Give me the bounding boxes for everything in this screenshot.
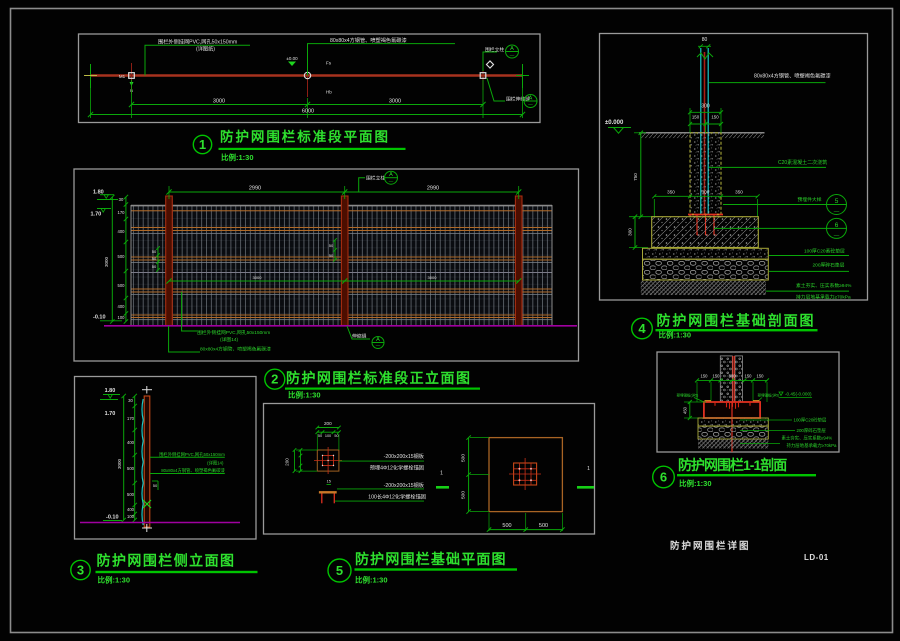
- svg-text:3000: 3000: [428, 275, 438, 280]
- svg-text:预埋钢板(详5): 预埋钢板(详5): [677, 393, 699, 398]
- svg-text:预埋钢板(详5): 预埋钢板(详5): [758, 393, 780, 398]
- svg-text:A: A: [510, 46, 514, 52]
- svg-text:比例:1:30: 比例:1:30: [355, 575, 388, 585]
- svg-text:30: 30: [119, 197, 124, 202]
- svg-text:—: —: [376, 343, 381, 348]
- svg-text:(详图14): (详图14): [207, 459, 224, 466]
- svg-text:15: 15: [327, 480, 331, 484]
- svg-text:500: 500: [461, 491, 467, 499]
- svg-text:150: 150: [711, 114, 719, 119]
- svg-text:3000: 3000: [213, 99, 225, 105]
- svg-text:±0.00: ±0.00: [286, 56, 298, 61]
- svg-text:素土夯实、压实系数≥94%: 素土夯实、压实系数≥94%: [782, 435, 833, 442]
- svg-text:±0.000: ±0.000: [605, 120, 624, 126]
- svg-text:150: 150: [692, 114, 700, 119]
- svg-text:C20素混凝土二次浇筑: C20素混凝土二次浇筑: [778, 159, 827, 166]
- svg-text:80x80x4方钢管、喷塑褐色氟碳漆: 80x80x4方钢管、喷塑褐色氟碳漆: [161, 467, 225, 474]
- svg-text:防护网围栏详图: 防护网围栏详图: [670, 540, 751, 552]
- svg-text:100厚C20素砼垫层: 100厚C20素砼垫层: [804, 247, 845, 254]
- svg-text:300: 300: [701, 104, 710, 110]
- svg-text:2: 2: [271, 372, 278, 387]
- svg-text:LD-01: LD-01: [804, 553, 829, 562]
- svg-text:400: 400: [127, 507, 135, 512]
- svg-text:防护网围栏基础剖面图: 防护网围栏基础剖面图: [657, 313, 816, 329]
- svg-text:400: 400: [118, 229, 126, 234]
- svg-text:围栏外侧挂网PVC,网孔50x150mm: 围栏外侧挂网PVC,网孔50x150mm: [197, 329, 270, 336]
- svg-text:Hb: Hb: [326, 90, 332, 95]
- svg-text:50: 50: [152, 249, 157, 254]
- svg-text:持力层地基承载力≥70kPa: 持力层地基承载力≥70kPa: [796, 293, 851, 300]
- svg-text:80x80x4方钢管、喷塑褐色氟碳漆: 80x80x4方钢管、喷塑褐色氟碳漆: [200, 346, 271, 353]
- svg-text:1.80: 1.80: [105, 388, 116, 394]
- svg-text:预埋4Φ12化学螺栓锚固: 预埋4Φ12化学螺栓锚固: [370, 464, 424, 472]
- svg-text:1.70: 1.70: [105, 411, 116, 417]
- svg-text:50: 50: [318, 434, 322, 438]
- svg-text:6: 6: [835, 222, 839, 229]
- svg-text:3: 3: [77, 563, 84, 578]
- svg-text:500: 500: [127, 466, 135, 471]
- svg-text:500: 500: [461, 454, 467, 462]
- svg-text:防护网围栏标准段正立面图: 防护网围栏标准段正立面图: [286, 370, 471, 386]
- svg-text:1: 1: [440, 471, 443, 477]
- svg-text:-0.10: -0.10: [106, 515, 119, 521]
- svg-text:1: 1: [199, 137, 206, 152]
- svg-text:4: 4: [638, 321, 646, 336]
- svg-text:100厚C20砼垫层: 100厚C20砼垫层: [794, 417, 828, 424]
- svg-text:(详图14): (详图14): [220, 336, 239, 343]
- svg-text:6: 6: [660, 470, 667, 485]
- svg-text:防护网围栏标准段平面图: 防护网围栏标准段平面图: [220, 129, 390, 145]
- svg-text:100: 100: [127, 514, 135, 519]
- svg-text:400: 400: [118, 304, 126, 309]
- svg-text:80: 80: [702, 37, 708, 43]
- svg-text:持力层地基承载力≥70kPa: 持力层地基承载力≥70kPa: [787, 442, 838, 449]
- svg-text:-200x200x15钢板: -200x200x15钢板: [384, 481, 425, 489]
- svg-text:500: 500: [502, 523, 511, 529]
- svg-text:—: —: [510, 53, 515, 58]
- svg-text:750: 750: [633, 173, 638, 181]
- svg-text:50: 50: [152, 264, 157, 269]
- svg-text:伸缩缝: 伸缩缝: [352, 333, 367, 340]
- svg-text:-0.10: -0.10: [93, 315, 106, 321]
- svg-text:150: 150: [713, 374, 721, 379]
- svg-text:M1: M1: [119, 74, 126, 79]
- svg-text:A: A: [389, 172, 393, 178]
- svg-text:350: 350: [667, 190, 675, 195]
- svg-text:200厚碎石垫层: 200厚碎石垫层: [797, 427, 827, 434]
- svg-text:围栏立柱: 围栏立柱: [366, 175, 385, 182]
- svg-text:—: —: [834, 233, 840, 239]
- svg-text:100长4Φ12化学螺栓锚固: 100长4Φ12化学螺栓锚固: [368, 493, 426, 501]
- svg-text:围栏立柱: 围栏立柱: [485, 46, 504, 53]
- svg-text:2990: 2990: [249, 186, 261, 192]
- svg-text:2990: 2990: [427, 186, 439, 192]
- svg-text:200: 200: [285, 458, 290, 466]
- svg-text:50: 50: [153, 483, 158, 488]
- svg-text:—: —: [389, 179, 394, 184]
- svg-text:6000: 6000: [302, 109, 314, 115]
- svg-text:围栏外侧挂网PVC,网孔50x150mm: 围栏外侧挂网PVC,网孔50x150mm: [159, 451, 225, 458]
- svg-text:3000: 3000: [389, 99, 401, 105]
- svg-text:400: 400: [127, 440, 135, 445]
- svg-text:比例:1:30: 比例:1:30: [288, 390, 321, 400]
- svg-text:500: 500: [118, 283, 126, 288]
- svg-text:5: 5: [336, 563, 343, 578]
- svg-text:防护网围栏侧立面图: 防护网围栏侧立面图: [97, 553, 236, 569]
- svg-text:80x80x4方钢管、喷塑褐色氟碳漆: 80x80x4方钢管、喷塑褐色氟碳漆: [754, 72, 831, 80]
- svg-text:80x80x4方钢管、喷塑褐色氟碳漆: 80x80x4方钢管、喷塑褐色氟碳漆: [330, 36, 407, 44]
- svg-text:350: 350: [735, 190, 743, 195]
- svg-text:比例:1:30: 比例:1:30: [221, 152, 254, 162]
- svg-text:500: 500: [539, 523, 548, 529]
- svg-text:围栏外侧挂网PVC,网孔50x150mm: 围栏外侧挂网PVC,网孔50x150mm: [158, 38, 237, 46]
- svg-text:防护网围栏基础平面图: 防护网围栏基础平面图: [355, 551, 507, 567]
- svg-text:(详图纸): (详图纸): [196, 45, 215, 53]
- svg-text:比例:1:30: 比例:1:30: [98, 575, 131, 585]
- svg-text:200厚碎石垫层: 200厚碎石垫层: [813, 262, 845, 269]
- svg-text:-0.45(-0.000): -0.45(-0.000): [785, 392, 812, 397]
- svg-text:—: —: [834, 209, 840, 215]
- svg-text:预埋件大样: 预埋件大样: [798, 196, 822, 203]
- svg-text:1.70: 1.70: [91, 212, 102, 218]
- svg-text:A: A: [529, 96, 533, 102]
- svg-text:3000: 3000: [104, 256, 109, 267]
- svg-text:500: 500: [118, 254, 126, 259]
- svg-text:比例:1:30: 比例:1:30: [659, 330, 692, 340]
- svg-text:100: 100: [325, 434, 331, 438]
- svg-text:300: 300: [628, 228, 633, 236]
- svg-text:-200x200x15钢板: -200x200x15钢板: [384, 452, 425, 460]
- svg-text:150: 150: [757, 374, 765, 379]
- svg-text:170: 170: [127, 416, 135, 421]
- svg-text:比例:1:30: 比例:1:30: [679, 478, 712, 488]
- svg-text:150: 150: [701, 374, 709, 379]
- svg-text:1: 1: [587, 466, 590, 472]
- svg-text:—: —: [528, 102, 533, 107]
- svg-text:200: 200: [324, 421, 332, 426]
- svg-text:5: 5: [835, 198, 839, 205]
- svg-text:50: 50: [152, 256, 157, 261]
- svg-text:30: 30: [128, 398, 133, 403]
- svg-text:50: 50: [334, 434, 338, 438]
- svg-text:3000: 3000: [253, 275, 263, 280]
- svg-text:450: 450: [683, 406, 688, 414]
- svg-text:500: 500: [127, 492, 135, 497]
- svg-text:170: 170: [118, 210, 126, 215]
- svg-text:50: 50: [329, 253, 334, 258]
- svg-text:150: 150: [745, 374, 753, 379]
- svg-text:素土夯实、压实系数≥94%: 素土夯实、压实系数≥94%: [796, 282, 852, 289]
- svg-text:3000: 3000: [117, 458, 122, 469]
- svg-text:Fs: Fs: [326, 61, 332, 66]
- svg-text:300: 300: [729, 374, 737, 379]
- svg-text:100: 100: [118, 315, 126, 320]
- svg-text:300: 300: [702, 190, 710, 195]
- svg-text:防护网围栏1-1剖面: 防护网围栏1-1剖面: [678, 457, 787, 473]
- svg-text:50: 50: [329, 243, 334, 248]
